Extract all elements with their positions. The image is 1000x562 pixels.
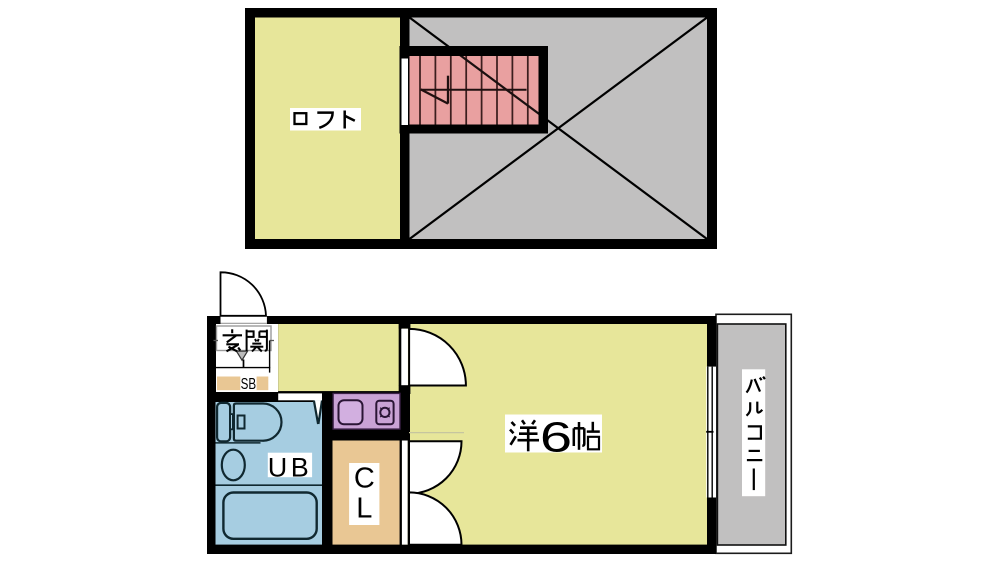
svg-text:6: 6 [540, 413, 572, 461]
svg-text:L: L [356, 493, 372, 525]
svg-text:C: C [354, 463, 375, 495]
svg-text:UB: UB [268, 453, 313, 483]
svg-text:SB: SB [241, 376, 257, 393]
